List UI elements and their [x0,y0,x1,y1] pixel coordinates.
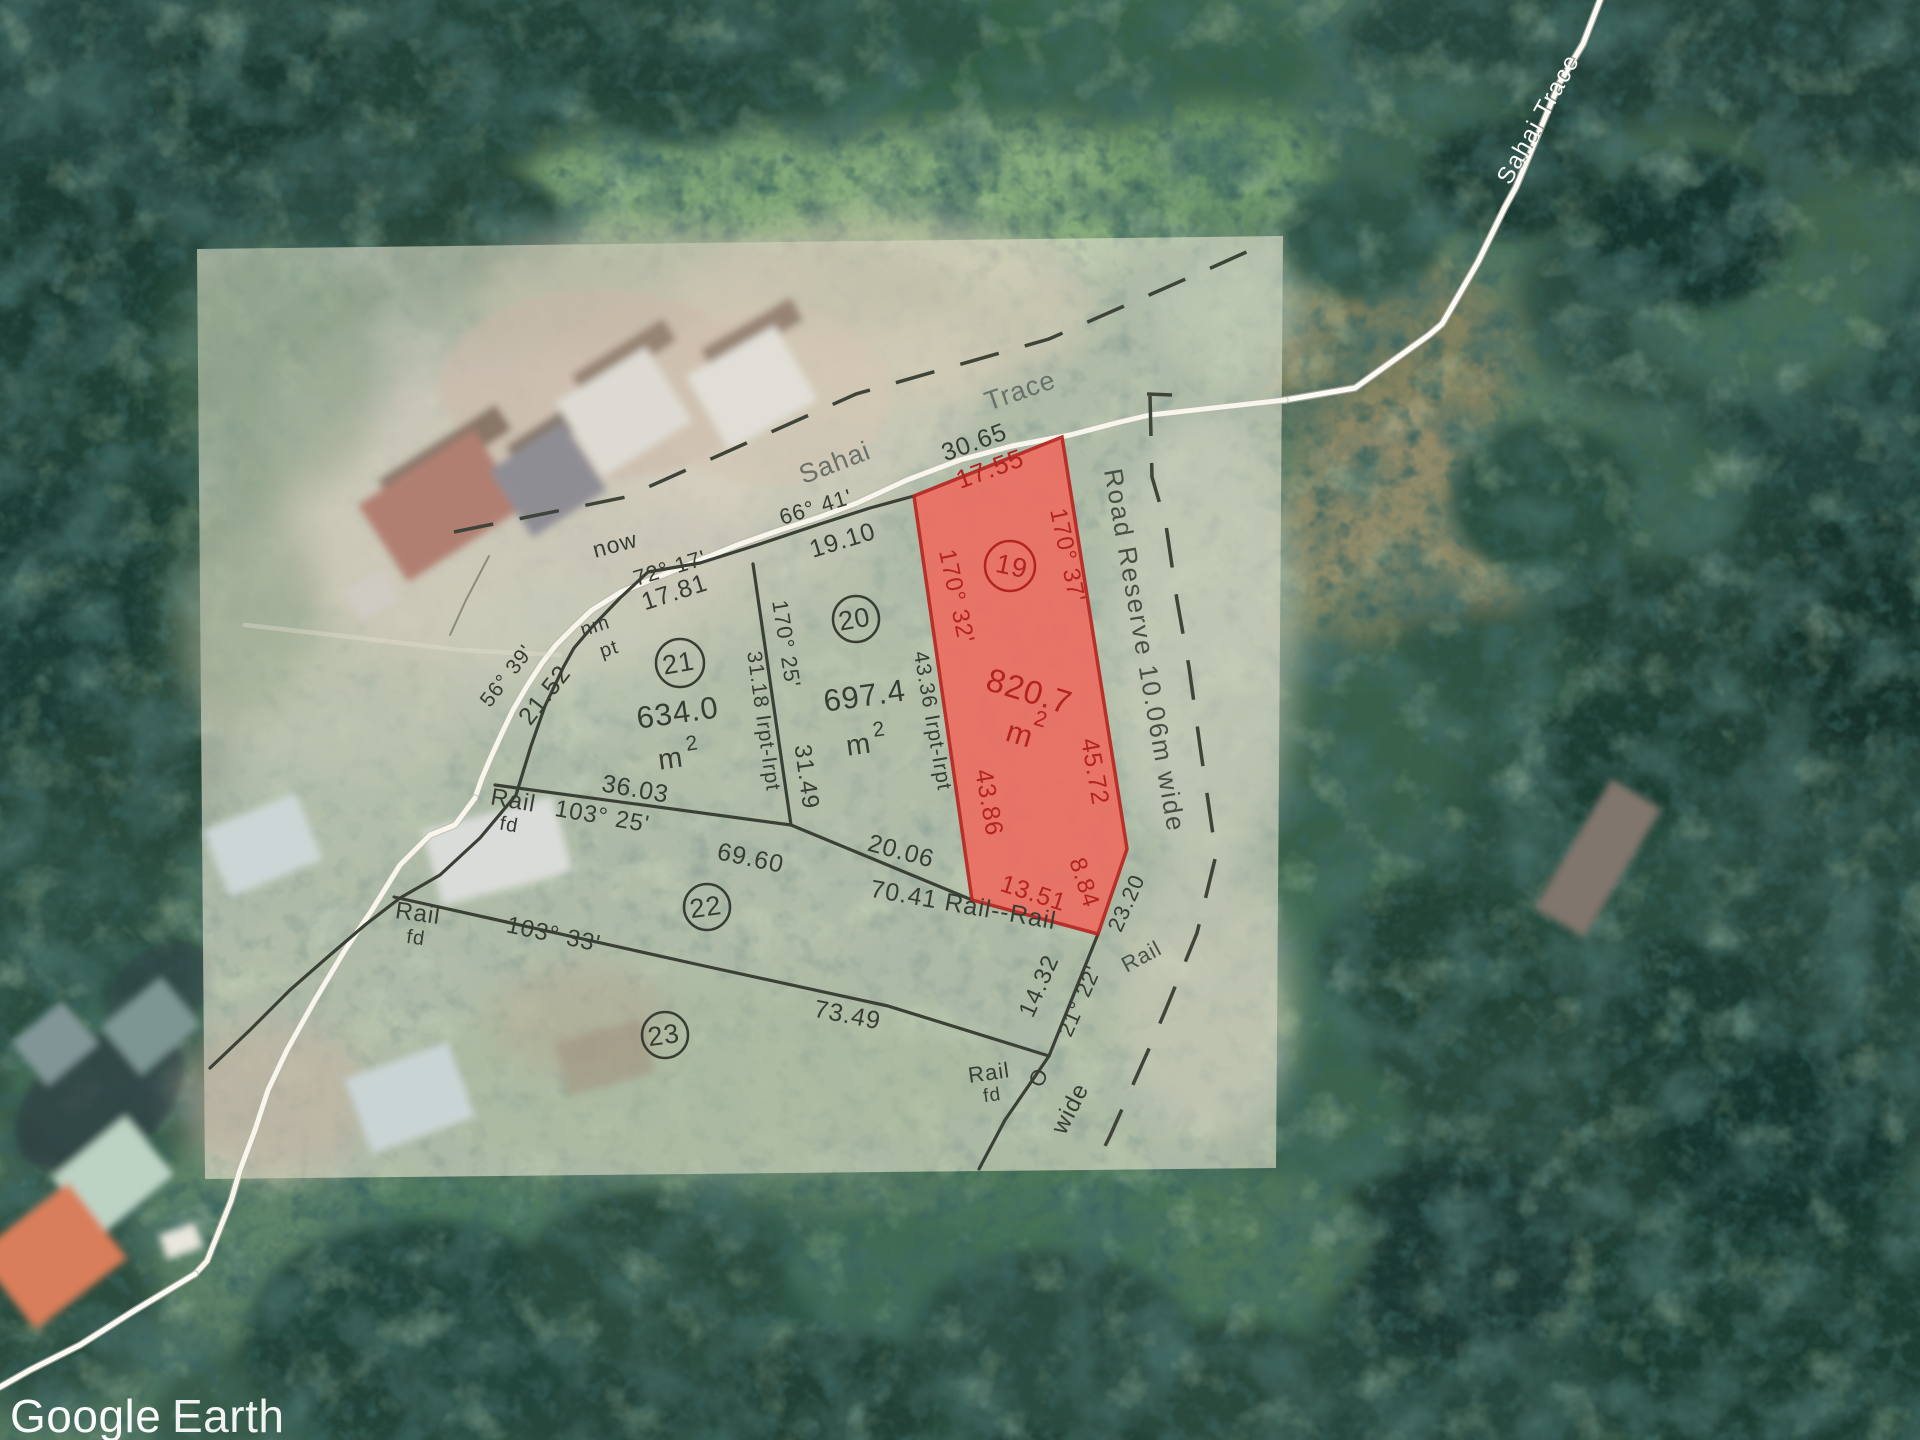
svg-text:Earth: Earth [172,1390,284,1440]
svg-text:Google: Google [10,1390,161,1440]
svg-text:fd: fd [405,926,427,950]
svg-text:21: 21 [660,646,697,681]
svg-text:fd: fd [498,813,520,838]
svg-text:m: m [844,727,873,762]
svg-text:fd: fd [982,1084,1003,1107]
svg-text:22: 22 [688,890,724,924]
svg-text:m: m [656,741,685,776]
svg-text:23: 23 [646,1018,682,1052]
svg-text:20: 20 [836,602,873,637]
